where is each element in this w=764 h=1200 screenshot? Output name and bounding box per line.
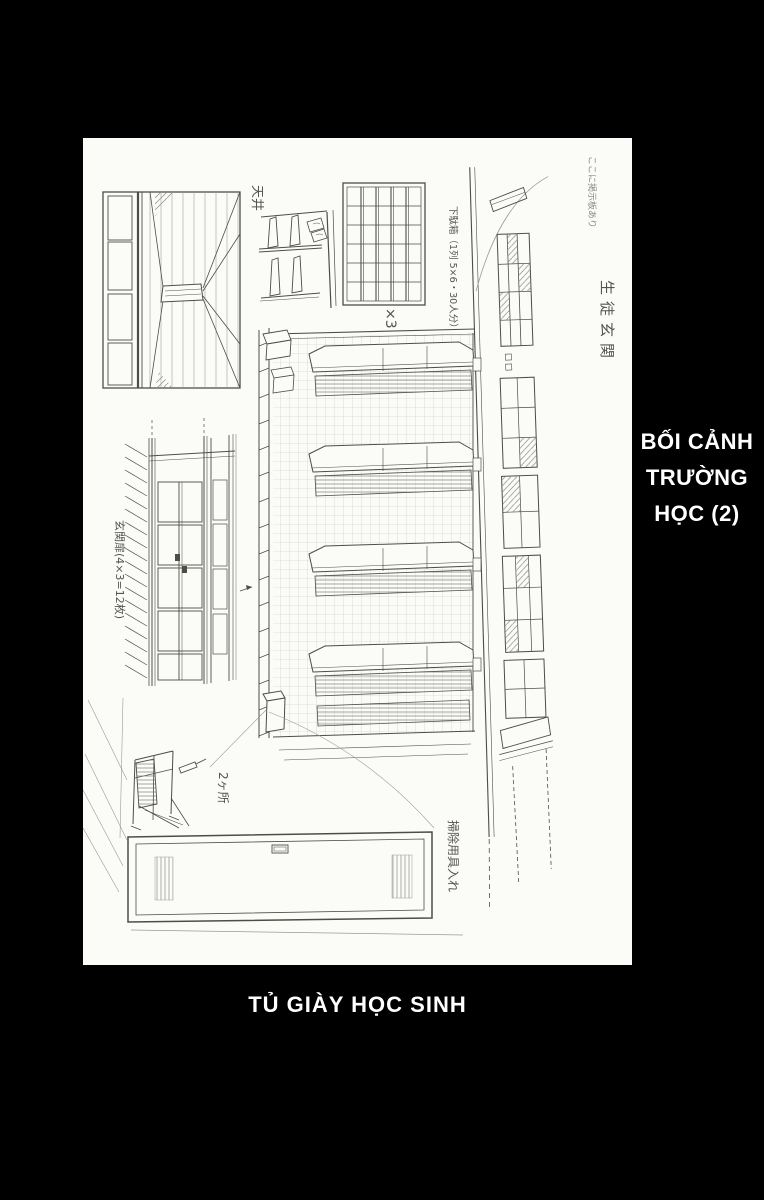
side-title: BỐI CẢNH TRƯỜNG HỌC (2) [630,424,764,532]
scanned-page: 天井 下駄箱（1列 5×6・30人分） ×3 生徒玄関 ここに掲示板あり 玄関扉… [83,138,632,965]
sketch-cubby-closeup [259,210,336,308]
sketch-bench [131,751,206,830]
side-title-line-1: BỐI CẢNH [630,424,764,460]
pencil-sketch [83,138,632,965]
bottom-caption: TỦ GIÀY HỌC SINH [83,992,632,1018]
sketch-interior-view [103,192,240,388]
side-title-line-3: HỌC (2) [630,496,764,532]
side-title-line-2: TRƯỜNG [630,460,764,496]
annotation-handwritten-note: ここに掲示板あり [586,156,595,228]
sketch-mat-platform [128,832,463,935]
annotation-two-places: 2ヶ所 [217,772,229,804]
sketch-main-hall [210,328,481,828]
sketch-cabinet-grid [343,183,425,305]
annotation-shoe-cabinet: 下駄箱（1列 5×6・30人分） [448,206,458,333]
annotation-entrance-doors: 玄関扉(4×3=12枚) [114,520,125,619]
scan-background: { "scan": { "background_color": "#000000… [0,0,764,1200]
sketch-right-elevation [464,165,574,907]
sketch-entrance-doors [125,418,252,686]
annotation-multiplier: ×3 [383,308,397,329]
annotation-ceiling: 天井 [250,185,263,211]
annotation-student-entrance: 生徒玄関 [599,280,614,364]
annotation-cleaning-supplies: 掃除用具入れ [447,820,459,892]
sketch-ambient-lines [83,698,127,892]
